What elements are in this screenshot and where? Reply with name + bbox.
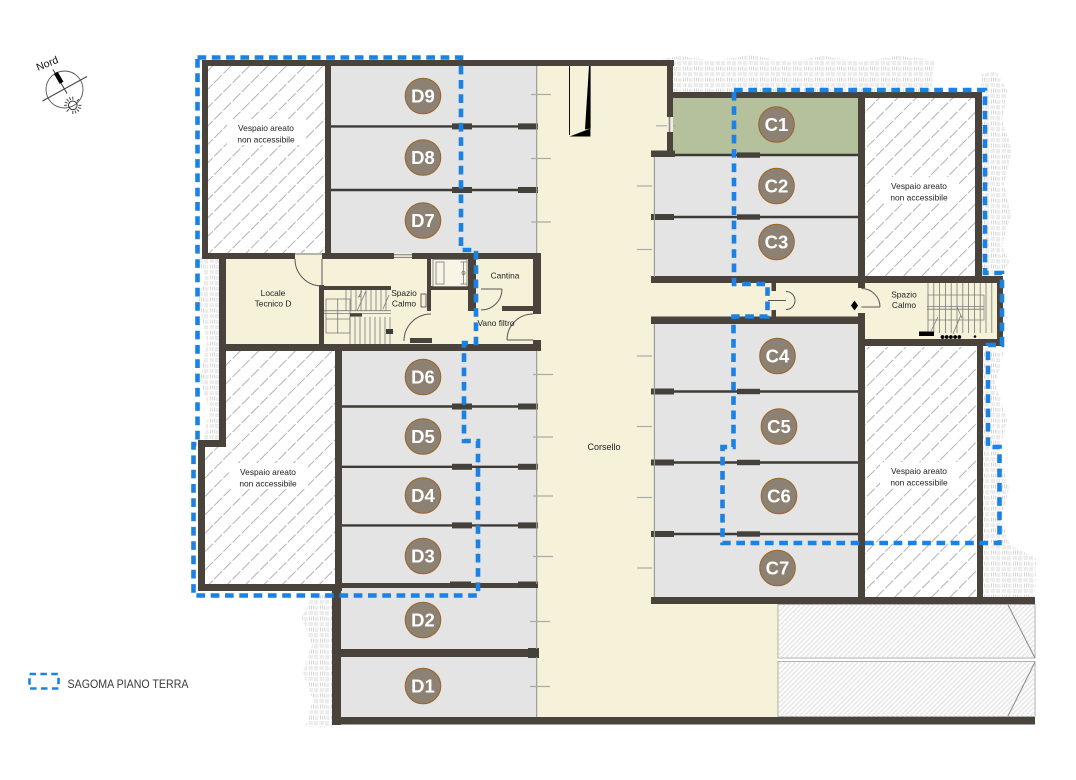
svg-text:D1: D1 (411, 676, 435, 697)
svg-text:D3: D3 (411, 546, 435, 567)
svg-text:Vespaio areato: Vespaio areato (238, 123, 294, 133)
svg-text:D5: D5 (411, 426, 435, 447)
svg-text:D2: D2 (411, 610, 435, 631)
svg-text:C6: C6 (767, 486, 791, 507)
svg-text:non accessibile: non accessibile (890, 193, 948, 203)
svg-text:non accessibile: non accessibile (239, 479, 297, 489)
svg-text:C5: C5 (767, 416, 791, 437)
svg-text:Corsello: Corsello (587, 442, 620, 452)
svg-text:Cantina: Cantina (491, 271, 520, 281)
svg-text:C1: C1 (765, 114, 789, 135)
svg-text:Locale: Locale (261, 288, 286, 298)
svg-text:C7: C7 (766, 558, 790, 579)
svg-text:Vano filtro: Vano filtro (477, 318, 514, 328)
svg-text:D9: D9 (411, 86, 435, 107)
svg-text:D7: D7 (411, 210, 435, 231)
svg-text:Calmo: Calmo (892, 300, 917, 310)
svg-text:Spazio: Spazio (891, 290, 917, 300)
svg-text:Vespaio areato: Vespaio areato (240, 467, 296, 477)
svg-text:Calmo: Calmo (392, 299, 417, 309)
svg-text:Vespaio areato: Vespaio areato (891, 181, 947, 191)
svg-text:C3: C3 (765, 232, 789, 253)
svg-text:C2: C2 (765, 176, 789, 197)
svg-text:non accessibile: non accessibile (890, 478, 948, 488)
svg-text:non accessibile: non accessibile (237, 135, 295, 145)
svg-text:D4: D4 (411, 485, 435, 506)
svg-text:Tecnico D: Tecnico D (255, 299, 292, 309)
svg-text:Vespaio areato: Vespaio areato (891, 466, 947, 476)
svg-text:D6: D6 (411, 367, 435, 388)
svg-text:C4: C4 (766, 346, 790, 367)
svg-text:D8: D8 (411, 147, 435, 168)
svg-text:SAGOMA PIANO TERRA: SAGOMA PIANO TERRA (68, 677, 189, 691)
svg-text:Spazio: Spazio (391, 288, 417, 298)
